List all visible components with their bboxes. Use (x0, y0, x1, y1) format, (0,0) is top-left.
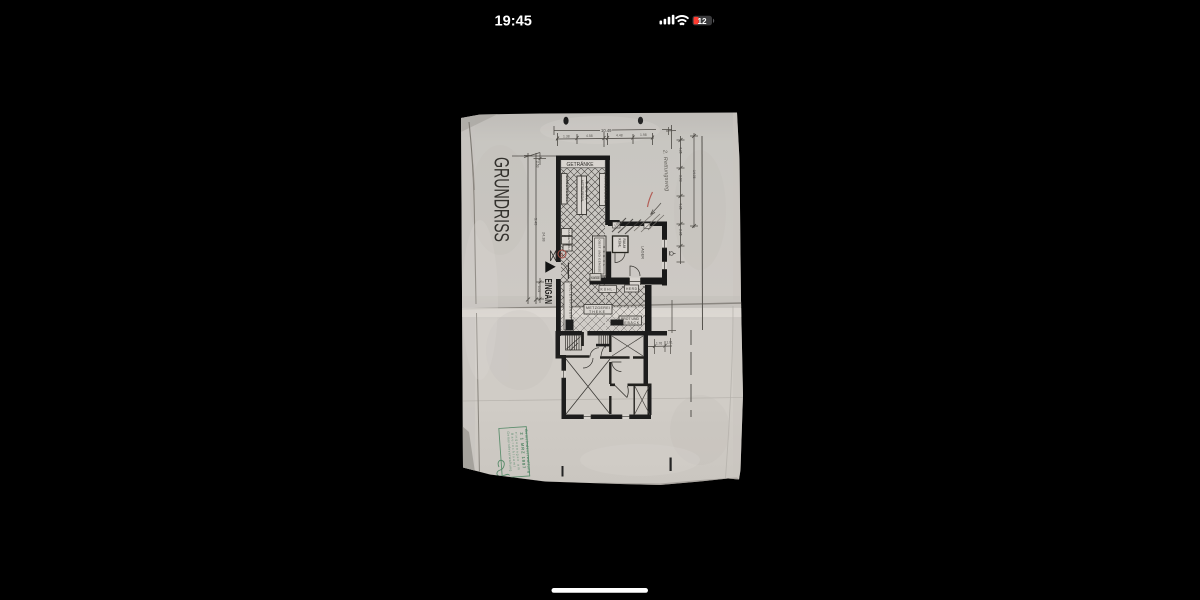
svg-text:1.38: 1.38 (563, 135, 570, 139)
svg-text:WANDREGAL: WANDREGAL (603, 176, 607, 203)
svg-text:KASSE/TISCH: KASSE/TISCH (567, 230, 571, 250)
svg-text:WANDREGAL: WANDREGAL (565, 176, 569, 202)
svg-text:1.01: 1.01 (667, 341, 673, 345)
svg-text:GETRÄNKE: GETRÄNKE (567, 161, 595, 168)
svg-text:12: 12 (697, 17, 707, 26)
svg-text:GEBÄCK: GEBÄCK (621, 321, 640, 325)
svg-text:3.93: 3.93 (678, 175, 682, 182)
svg-text:HERD: HERD (626, 287, 638, 291)
svg-text:OBST UND GEMÜSE: OBST UND GEMÜSE (598, 240, 602, 273)
svg-text:RAUM: RAUM (622, 239, 626, 249)
svg-text:KASSE: KASSE (591, 276, 600, 280)
svg-text:24.38: 24.38 (542, 232, 546, 242)
svg-text:4.25: 4.25 (678, 147, 682, 154)
svg-text:1.98: 1.98 (640, 133, 647, 137)
svg-text:4.48: 4.48 (616, 134, 623, 138)
svg-text:MITTELREGAL: MITTELREGAL (580, 180, 584, 202)
svg-text:19:45: 19:45 (495, 14, 532, 30)
svg-text:GRUNDRISS: GRUNDRISS (490, 157, 513, 242)
svg-text:2.85: 2.85 (678, 229, 682, 236)
svg-text:5.49: 5.49 (534, 218, 538, 225)
svg-text:4.58: 4.58 (586, 134, 593, 138)
svg-text:THEKE: THEKE (589, 310, 606, 314)
svg-text:14.05: 14.05 (692, 170, 696, 179)
svg-text:4.25: 4.25 (678, 203, 682, 210)
svg-text:4: 4 (560, 252, 563, 258)
svg-text:10.49: 10.49 (601, 128, 612, 133)
svg-text:KÜHL: KÜHL (618, 239, 622, 248)
svg-text:LAGER: LAGER (641, 246, 645, 259)
svg-text:1.76: 1.76 (656, 342, 662, 346)
svg-text:1.01: 1.01 (537, 286, 541, 292)
